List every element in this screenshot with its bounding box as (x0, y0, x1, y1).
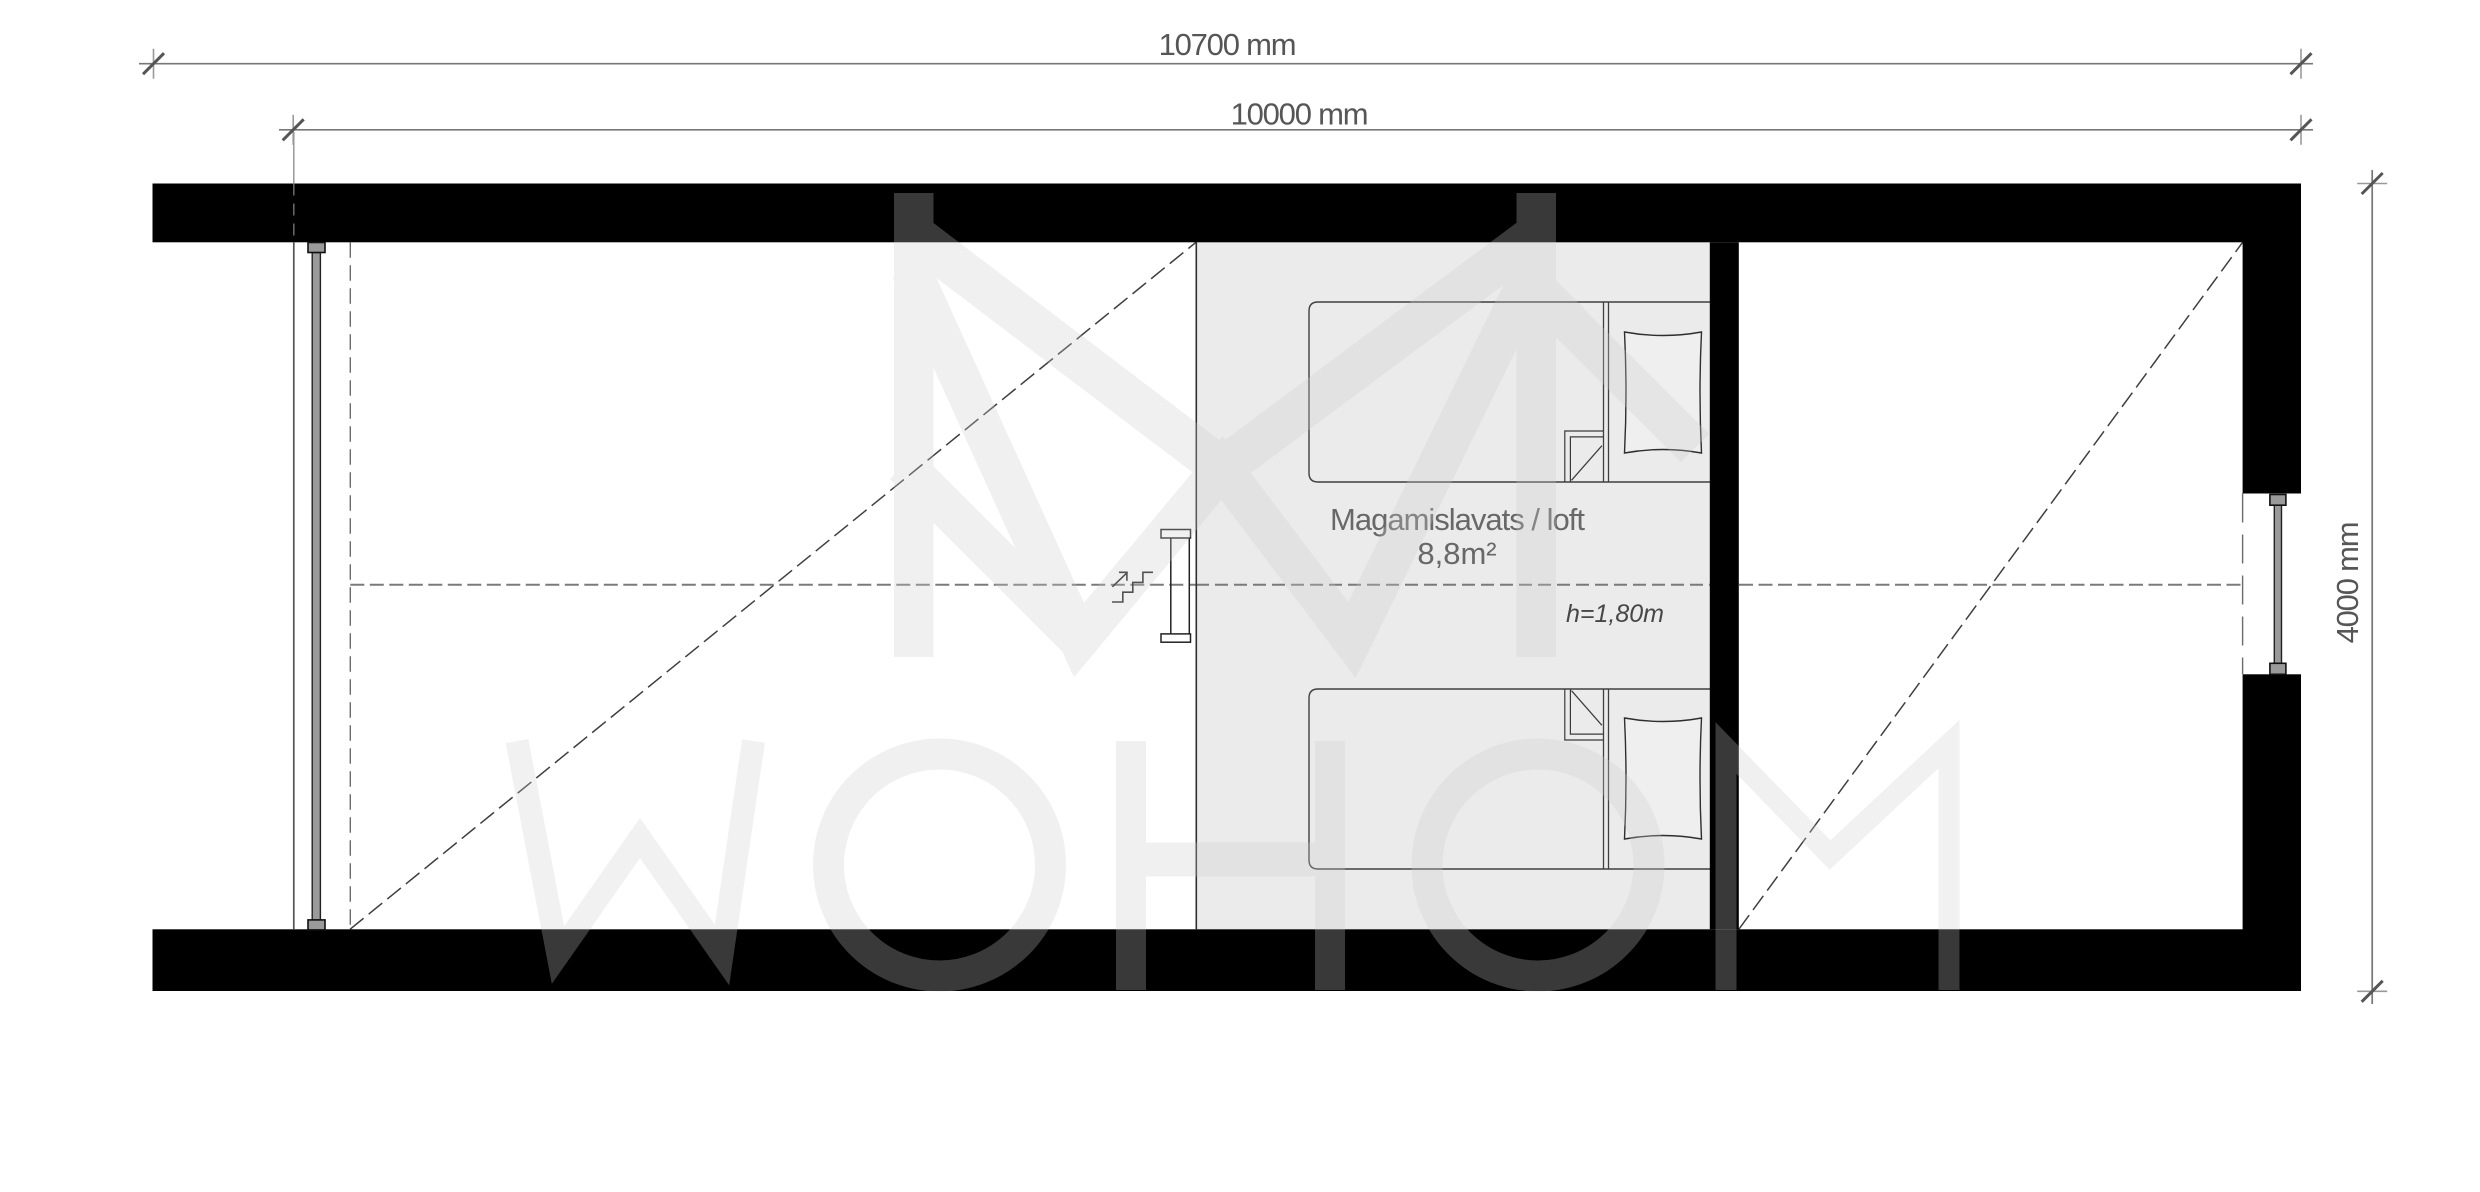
svg-text:4000 mm: 4000 mm (2330, 523, 2365, 644)
svg-text:10000 mm: 10000 mm (1231, 97, 1368, 132)
svg-text:8,8m²: 8,8m² (1417, 536, 1496, 571)
svg-text:h=1,80m: h=1,80m (1566, 600, 1664, 628)
svg-text:10700 mm: 10700 mm (1159, 27, 1296, 62)
